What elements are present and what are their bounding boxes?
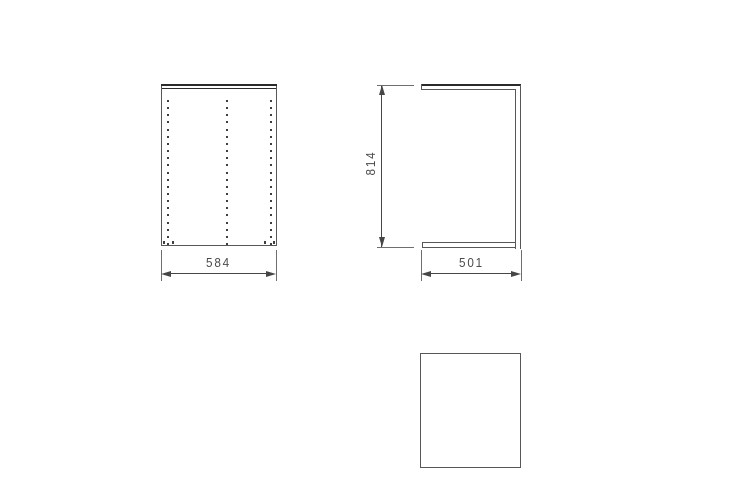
shelf-hole-dot bbox=[167, 136, 169, 138]
shelf-hole-dot bbox=[167, 150, 169, 152]
shelf-hole-dot bbox=[270, 222, 272, 224]
shelf-hole-dot bbox=[167, 179, 169, 181]
dowel-mark bbox=[264, 241, 266, 244]
shelf-hole-dot bbox=[167, 172, 169, 174]
shelf-hole-dot bbox=[167, 229, 169, 231]
arrow-up-icon bbox=[379, 85, 385, 95]
arrow-right-icon bbox=[511, 271, 521, 277]
side-bottom-panel-end-cap bbox=[422, 242, 423, 248]
shelf-hole-dot bbox=[167, 100, 169, 102]
shelf-hole-dot bbox=[270, 157, 272, 159]
shelf-hole-dot bbox=[167, 243, 169, 245]
shelf-hole-dot bbox=[167, 121, 169, 123]
side-top-panel-end-cap bbox=[421, 84, 422, 90]
shelf-hole-dot bbox=[226, 243, 228, 245]
shelf-hole-dot bbox=[270, 236, 272, 238]
shelf-hole-dot bbox=[167, 193, 169, 195]
shelf-hole-dot bbox=[270, 193, 272, 195]
shelf-hole-dot bbox=[270, 114, 272, 116]
shelf-hole-dot bbox=[226, 207, 228, 209]
shelf-hole-dot bbox=[270, 200, 272, 202]
shelf-hole-dot bbox=[167, 207, 169, 209]
arrow-left-icon bbox=[421, 271, 431, 277]
shelf-hole-dot bbox=[167, 143, 169, 145]
shelf-hole-dot bbox=[226, 186, 228, 188]
shelf-hole-dot bbox=[167, 129, 169, 131]
shelf-hole-dot bbox=[270, 121, 272, 123]
width-extension-line-right bbox=[276, 250, 277, 281]
shelf-hole-dot bbox=[226, 229, 228, 231]
shelf-hole-dot bbox=[167, 157, 169, 159]
shelf-hole-dot bbox=[226, 150, 228, 152]
shelf-hole-dot bbox=[270, 179, 272, 181]
arrow-down-icon bbox=[379, 237, 385, 247]
shelf-hole-dot bbox=[226, 222, 228, 224]
depth-dimension-line bbox=[430, 273, 513, 274]
shelf-hole-dot bbox=[167, 164, 169, 166]
shelf-hole-dot bbox=[167, 222, 169, 224]
dimension-height: 814 bbox=[356, 84, 418, 250]
side-back-panel-inner-edge bbox=[515, 89, 516, 249]
shelf-hole-dot bbox=[226, 129, 228, 131]
shelf-hole-dot bbox=[226, 157, 228, 159]
shelf-hole-dot bbox=[270, 143, 272, 145]
shelf-hole-dot bbox=[226, 200, 228, 202]
shelf-hole-pattern bbox=[161, 84, 277, 246]
shelf-hole-dot bbox=[226, 193, 228, 195]
shelf-hole-dot bbox=[226, 114, 228, 116]
width-dimension-line bbox=[170, 273, 268, 274]
height-extension-line-bottom bbox=[377, 247, 414, 248]
side-bottom-panel-bottom-edge bbox=[422, 247, 515, 248]
shelf-hole-dot bbox=[270, 129, 272, 131]
shelf-hole-dot bbox=[167, 114, 169, 116]
shelf-hole-dot bbox=[270, 186, 272, 188]
dimension-height-label: 814 bbox=[364, 144, 378, 182]
dowel-mark bbox=[163, 241, 165, 244]
side-back-panel-outer-edge bbox=[520, 85, 521, 249]
shelf-hole-dot bbox=[270, 136, 272, 138]
shelf-hole-dot bbox=[270, 172, 272, 174]
arrow-left-icon bbox=[161, 271, 171, 277]
shelf-hole-dot bbox=[270, 100, 272, 102]
shelf-hole-dot bbox=[167, 107, 169, 109]
shelf-hole-dot bbox=[226, 100, 228, 102]
shelf-hole-dot bbox=[270, 164, 272, 166]
front-view bbox=[161, 84, 277, 246]
arrow-right-icon bbox=[266, 271, 276, 277]
dimension-width: 584 bbox=[161, 250, 276, 282]
side-bottom-panel-top-edge bbox=[422, 242, 515, 243]
side-view bbox=[421, 84, 522, 249]
shelf-hole-dot bbox=[167, 186, 169, 188]
shelf-hole-dot bbox=[270, 229, 272, 231]
height-dimension-line bbox=[381, 86, 382, 247]
shelf-hole-dot bbox=[167, 236, 169, 238]
shelf-hole-dot bbox=[226, 136, 228, 138]
technical-drawing-canvas: 584 814 501 bbox=[0, 0, 750, 500]
shelf-hole-dot bbox=[270, 150, 272, 152]
plan-view bbox=[420, 353, 521, 468]
shelf-hole-dot bbox=[226, 214, 228, 216]
dimension-depth: 501 bbox=[421, 250, 522, 282]
shelf-hole-dot bbox=[226, 179, 228, 181]
shelf-hole-dot bbox=[270, 214, 272, 216]
shelf-hole-dot bbox=[226, 164, 228, 166]
shelf-hole-dot bbox=[226, 143, 228, 145]
dowel-mark bbox=[172, 241, 174, 244]
side-top-panel-bottom-edge bbox=[421, 89, 516, 90]
side-top-panel-top-edge bbox=[421, 84, 521, 86]
shelf-hole-dot bbox=[270, 207, 272, 209]
dimension-width-label: 584 bbox=[167, 256, 271, 270]
shelf-hole-dot bbox=[167, 214, 169, 216]
dimension-depth-label: 501 bbox=[426, 256, 517, 270]
depth-extension-line-right bbox=[521, 250, 522, 281]
shelf-hole-dot bbox=[226, 107, 228, 109]
shelf-hole-dot bbox=[226, 172, 228, 174]
shelf-hole-dot bbox=[270, 107, 272, 109]
dowel-mark bbox=[273, 241, 275, 244]
shelf-hole-dot bbox=[226, 236, 228, 238]
shelf-hole-dot bbox=[167, 200, 169, 202]
shelf-hole-dot bbox=[226, 121, 228, 123]
